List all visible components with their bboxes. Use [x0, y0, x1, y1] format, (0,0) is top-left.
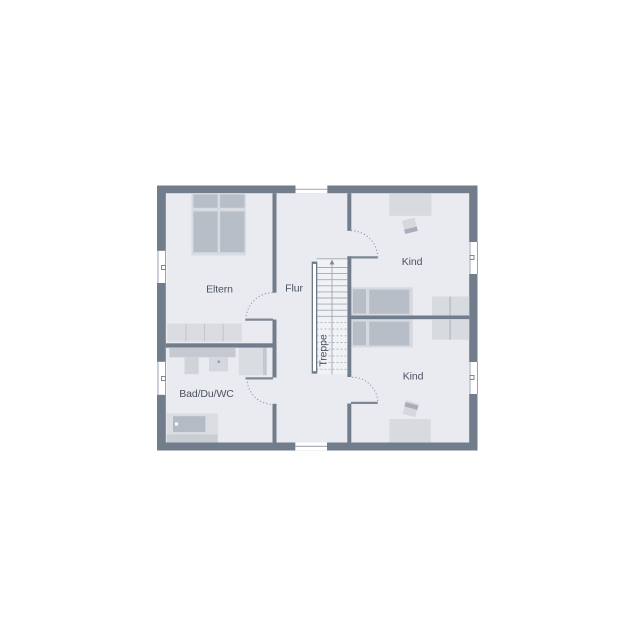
svg-text:Treppe: Treppe — [318, 334, 330, 367]
svg-text:Bad/Du/WC: Bad/Du/WC — [179, 388, 234, 400]
svg-text:Eltern: Eltern — [206, 284, 233, 296]
svg-text:Kind: Kind — [402, 256, 423, 268]
svg-text:Flur: Flur — [285, 283, 303, 295]
svg-text:Kind: Kind — [403, 371, 424, 383]
